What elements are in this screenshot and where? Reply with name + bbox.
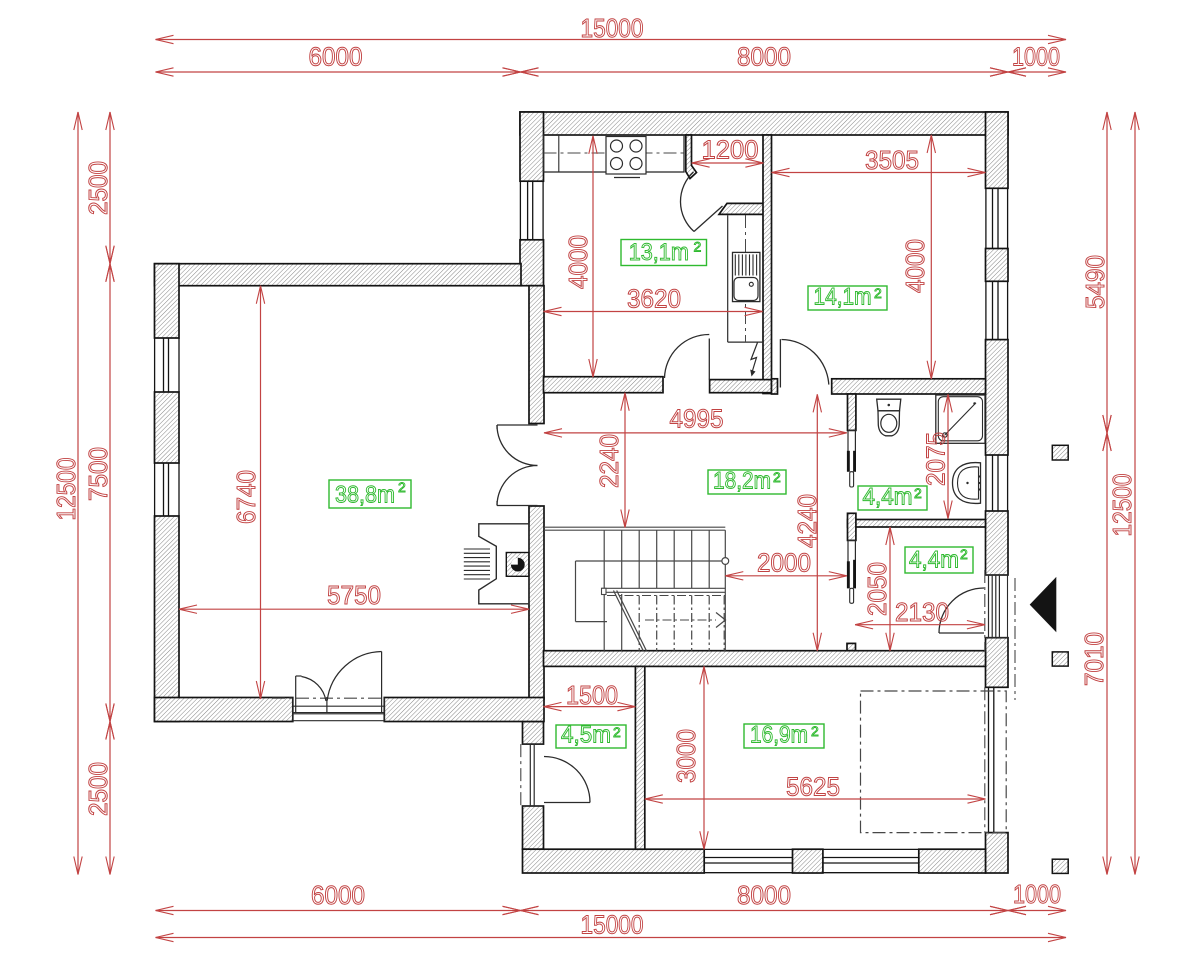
svg-text:38,8m: 38,8m (335, 482, 395, 509)
svg-text:2130: 2130 (895, 597, 949, 627)
svg-text:4,4m: 4,4m (909, 547, 959, 574)
svg-text:5625: 5625 (786, 772, 840, 802)
svg-text:4240: 4240 (792, 494, 822, 548)
svg-text:6740: 6740 (231, 470, 261, 524)
svg-text:2: 2 (811, 723, 819, 739)
svg-text:1200: 1200 (702, 135, 759, 165)
svg-text:2: 2 (398, 479, 406, 495)
svg-text:2500: 2500 (83, 161, 113, 215)
svg-text:2: 2 (773, 469, 781, 485)
svg-text:8000: 8000 (737, 880, 791, 910)
svg-text:2: 2 (960, 546, 968, 562)
svg-text:4000: 4000 (563, 235, 593, 289)
svg-text:4000: 4000 (900, 239, 930, 293)
svg-text:12500: 12500 (1107, 474, 1137, 537)
svg-text:13,1m: 13,1m (629, 239, 689, 266)
svg-text:2: 2 (694, 239, 702, 255)
svg-text:3505: 3505 (865, 145, 919, 175)
svg-text:7010: 7010 (1079, 632, 1109, 686)
svg-text:4,4m: 4,4m (863, 484, 913, 511)
svg-text:2500: 2500 (83, 762, 113, 816)
svg-text:4,5m: 4,5m (561, 722, 611, 749)
svg-text:2: 2 (613, 724, 621, 740)
svg-text:6000: 6000 (309, 42, 363, 72)
svg-text:8000: 8000 (737, 42, 791, 72)
svg-text:1000: 1000 (1012, 42, 1060, 72)
svg-text:14,1m: 14,1m (814, 284, 872, 311)
svg-text:5490: 5490 (1080, 255, 1110, 309)
svg-text:18,2m: 18,2m (713, 468, 771, 495)
svg-text:3000: 3000 (671, 729, 701, 783)
svg-text:7500: 7500 (83, 447, 113, 501)
svg-text:2240: 2240 (594, 434, 624, 488)
svg-text:12500: 12500 (51, 458, 81, 521)
svg-text:15000: 15000 (581, 13, 644, 43)
svg-text:6000: 6000 (311, 880, 365, 910)
svg-text:2075: 2075 (921, 432, 951, 486)
svg-text:5750: 5750 (327, 580, 381, 610)
svg-text:3620: 3620 (627, 284, 681, 314)
svg-text:2000: 2000 (757, 548, 811, 578)
svg-text:1500: 1500 (566, 680, 618, 710)
svg-text:2050: 2050 (862, 562, 892, 616)
svg-text:16,9m: 16,9m (750, 722, 808, 749)
svg-text:15000: 15000 (581, 910, 644, 940)
svg-text:2: 2 (874, 285, 882, 301)
svg-text:4995: 4995 (670, 404, 724, 434)
svg-text:1000: 1000 (1013, 879, 1061, 909)
svg-text:2: 2 (914, 485, 922, 501)
